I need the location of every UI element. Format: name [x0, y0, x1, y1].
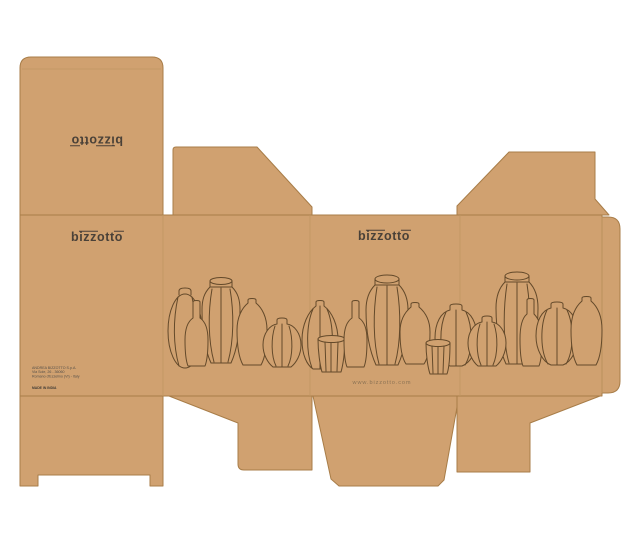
made-in-label: MADE IN INDIA: [32, 386, 80, 390]
maker-line: Romano d'Ezzelino (VI) - Italy: [32, 374, 80, 378]
flap-glue-right: [602, 217, 620, 393]
logo-part: tt: [79, 133, 89, 147]
dieline-drawing: [0, 0, 640, 538]
logo-part-overbar: izz: [97, 133, 115, 147]
cup-2: [426, 340, 450, 375]
logo-part-overbar: izz: [79, 230, 97, 244]
website-url: www.bizzotto.com: [353, 380, 412, 386]
logo-part-overbar: o: [71, 133, 79, 147]
cup-1: [318, 336, 345, 373]
logo-part-overbar: izz: [366, 229, 384, 243]
flap-bottom-right: [457, 396, 600, 472]
flap-bottom-left: [169, 396, 312, 470]
logo-part-overbar: o: [402, 229, 410, 243]
maker-info-block: ANDREA BIZZOTTO S.p.A. Via Sole, 26 - 36…: [32, 366, 80, 390]
panel-bottom-left-feet: [20, 396, 163, 486]
flap-top-left: [173, 147, 312, 215]
logo-part-overbar: o: [115, 230, 123, 244]
flap-top-right: [457, 152, 609, 215]
packaging-dieline-artboard: bizzotto bizzotto bizzotto www.bizzotto.…: [0, 0, 640, 538]
brand-logo-back-panel: bizzotto: [71, 231, 123, 244]
brand-logo-lid: bizzotto: [71, 134, 123, 147]
logo-part: b: [115, 133, 123, 147]
brand-logo-front-panel: bizzotto: [358, 230, 410, 243]
flap-bottom-center: [313, 396, 459, 486]
